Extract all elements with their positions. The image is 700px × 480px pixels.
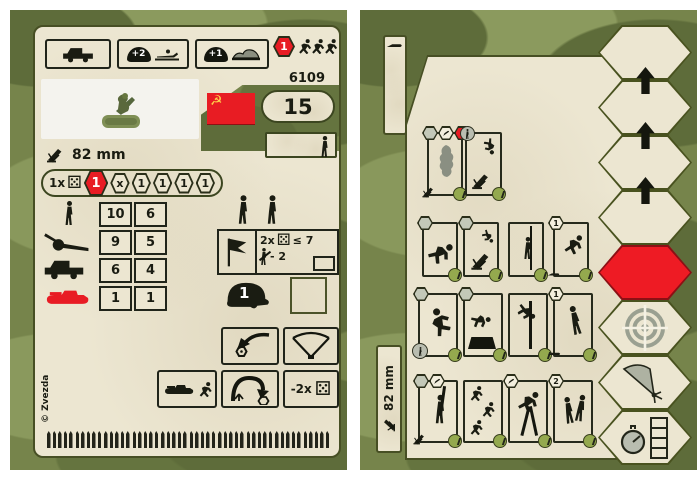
- tank-icon: [161, 381, 195, 397]
- mortar-icon: [412, 433, 428, 445]
- order-carry-mortar: [418, 380, 458, 443]
- fire-arc-icon: [614, 363, 676, 403]
- initiative-current-hex: 1: [84, 170, 108, 196]
- indirect-fire-box: [221, 370, 279, 408]
- left-camo-panel: +2 +1 1 6109 ☭: [10, 10, 347, 470]
- target-truck-icon: [43, 258, 95, 282]
- soldier-icon: [320, 136, 330, 157]
- order-take-cover: 1: [553, 222, 589, 277]
- cost-badge: [448, 348, 462, 362]
- soviet-flag: ☭: [207, 93, 255, 124]
- helmet-value: 1: [239, 284, 249, 302]
- up-arrow-icon: [636, 122, 655, 149]
- initiative-change-box: [221, 327, 279, 365]
- status-hex-target: [598, 300, 692, 355]
- fire-value: 9: [99, 230, 132, 255]
- initiative-prefix: 1x: [49, 176, 65, 190]
- retreat-modifier: -2x: [291, 382, 312, 396]
- timer-boxes-icon: [613, 416, 677, 460]
- fire-value: 6: [134, 202, 167, 227]
- die-icon: ⚄: [277, 232, 291, 248]
- action-hex-badge: [413, 374, 429, 388]
- walking-soldier-icon: [566, 304, 586, 336]
- digging-soldier-icon: [467, 305, 495, 335]
- crossed-soldier-icon: [260, 248, 268, 265]
- walking-soldier-icon: [573, 393, 589, 422]
- order-shovel-work: [508, 293, 548, 357]
- badge-value: 2: [553, 377, 559, 386]
- fire-value: 4: [134, 258, 167, 283]
- cost-badge: [489, 268, 503, 282]
- initiative-hex: 1: [174, 173, 193, 194]
- order-stand-ready: [508, 222, 544, 277]
- cost-badge: [579, 268, 593, 282]
- order-fire-mission: [465, 132, 502, 196]
- cost-badge: [448, 434, 462, 448]
- diving-soldier-icon: [562, 232, 586, 256]
- cost-badge: [493, 348, 507, 362]
- bent-soldier-icon: [517, 302, 538, 323]
- hammer-sickle-icon: ☭: [210, 93, 223, 109]
- firing-mortar-icon: [469, 251, 495, 271]
- hills-icon: [231, 47, 261, 62]
- mortar-shell-icon: [547, 272, 561, 279]
- ammo-group: [247, 426, 273, 448]
- cost-badge: [583, 434, 597, 448]
- morale-penalty: - 2: [270, 250, 286, 263]
- soldier-icon: [266, 195, 279, 224]
- morale-check-cell: 2x ⚄ ≤ 7 - 2: [257, 231, 337, 273]
- entrench-bonus-value: +2: [132, 49, 146, 59]
- flag-icon: [225, 236, 249, 269]
- catalog-number: 6109: [289, 71, 325, 86]
- target-tank-icon: [41, 286, 97, 310]
- cost-badge: [583, 348, 597, 362]
- die-icon: ⚄: [315, 380, 332, 399]
- transport-box: [45, 39, 111, 69]
- status-hex-fire-arc: [598, 355, 692, 410]
- helmet-icon: +2: [127, 47, 151, 62]
- truck-icon: [62, 46, 94, 63]
- cover-bonus-box: +1: [195, 39, 269, 69]
- cost-badge: [448, 268, 462, 282]
- action-hex-badge: [458, 287, 474, 301]
- order-emplace-fire: [463, 222, 499, 277]
- cover-bonus-value: +1: [209, 49, 223, 59]
- order-entrench: [463, 293, 503, 357]
- cost-badge: [493, 434, 507, 448]
- order-march-column: [463, 380, 503, 443]
- action-hex-badge: [417, 216, 433, 230]
- up-arrow-icon: [636, 177, 655, 204]
- firing-mortar-icon: [470, 172, 494, 190]
- marching-soldier-icon: [469, 420, 484, 435]
- entrench-bonus-box: +2: [117, 39, 189, 69]
- ammo-tally-strip: [47, 426, 329, 448]
- weapon-heading: 82 mm: [45, 147, 126, 163]
- shell-hex-badge: [503, 374, 519, 388]
- target-gun-icon: [41, 232, 97, 254]
- cost-badge: [534, 268, 548, 282]
- initiative-hex: 1: [196, 173, 215, 194]
- fire-value: 1: [99, 286, 132, 311]
- initiative-cell: 1: [180, 177, 188, 190]
- rout-hex: 1: [273, 36, 295, 57]
- fire-value: 6: [99, 258, 132, 283]
- prone-shooter-icon: [154, 47, 180, 62]
- arc-over-obstacle-icon: [225, 373, 275, 405]
- status-hex-red: [598, 245, 692, 300]
- soldier-circle-badge: [460, 126, 475, 141]
- mortar-team-model-image: [88, 87, 152, 131]
- smoke-cloud-icon: [436, 138, 456, 184]
- weapon-caliber: 82 mm: [72, 147, 126, 163]
- rout-marker: 1: [273, 36, 339, 57]
- marching-soldier-icon: [481, 402, 496, 417]
- morale-box: 2x ⚄ ≤ 7 - 2: [217, 229, 339, 275]
- order-climb: [418, 293, 458, 357]
- copyright-text: © Zvezda: [41, 353, 51, 423]
- ammo-group: [133, 426, 159, 448]
- status-hex-timer: [598, 410, 692, 465]
- right-camo-panel: 1 1: [360, 10, 697, 470]
- climbing-soldier-icon: [421, 304, 458, 341]
- ammo-group: [161, 426, 187, 448]
- ammo-group: [76, 426, 102, 448]
- unit-photo: [41, 79, 199, 139]
- status-marker-box: [290, 277, 327, 314]
- mortar-icon: [382, 415, 396, 433]
- assault-box: [157, 370, 217, 408]
- initiative-current: 1: [92, 176, 101, 191]
- numbered-hex-badge: 2: [548, 374, 564, 388]
- mortar-shell-icon: [386, 43, 404, 51]
- mortar-shell-icon: [547, 351, 562, 359]
- wheel-badge: [412, 343, 428, 359]
- target-icon: [622, 305, 668, 351]
- fire-value: 5: [134, 230, 167, 255]
- morale-threshold: ≤ 7: [293, 234, 314, 247]
- morale-dice-count: 2x: [260, 234, 275, 247]
- initiative-track: 1x ⚄ 1 x 1 1 1 1: [41, 169, 223, 197]
- ammo-group: [47, 426, 73, 448]
- numbered-hex-badge: 1: [548, 216, 564, 230]
- unit-card-front: +2 +1 1 6109 ☭: [33, 25, 341, 458]
- action-hex-badge: [413, 287, 429, 301]
- order-crawl: [422, 222, 458, 277]
- ammo-group: [304, 426, 330, 448]
- action-hex-badge: [458, 216, 474, 230]
- mortar-icon: [45, 147, 67, 163]
- strength-box: [265, 132, 337, 158]
- badge-value: 1: [553, 219, 559, 228]
- order-shoulder-mortar: [508, 380, 548, 443]
- crew-icons: [237, 195, 279, 224]
- shell-tab: [383, 35, 407, 135]
- morale-marker-box: [313, 256, 335, 271]
- up-arrow-icon: [636, 67, 655, 94]
- initiative-cell: 1: [201, 177, 209, 190]
- weapon-tab: 82 mm: [376, 345, 402, 453]
- scan-of-game-cards: { "front_card": { "catalog_number": "610…: [0, 0, 700, 480]
- running-soldier-icon: [323, 39, 339, 54]
- numbered-hex-badge: 1: [548, 287, 564, 301]
- initiative-cell: 1: [159, 177, 167, 190]
- mortar-icon: [421, 186, 437, 198]
- soldier-icon: [237, 195, 250, 224]
- fire-value: 10: [99, 202, 132, 227]
- order-double-move: 2: [553, 380, 593, 443]
- rout-value: 1: [280, 40, 288, 53]
- target-infantry-icon: [43, 201, 95, 227]
- order-move-fire: 1: [553, 293, 593, 357]
- spotting-arc-box: [283, 327, 339, 365]
- ammo-group: [190, 426, 216, 448]
- initiative-cell: 1: [137, 177, 145, 190]
- badge-value: 1: [553, 290, 559, 299]
- curved-arrow-die-icon: [225, 331, 275, 361]
- initiative-hex: 1: [153, 173, 172, 194]
- ammo-group: [218, 426, 244, 448]
- fire-value: 1: [134, 286, 167, 311]
- crawling-soldier-icon: [424, 235, 457, 268]
- initiative-cell: x: [116, 177, 123, 190]
- falling-soldier-icon: [480, 136, 501, 157]
- running-soldier-icon: [198, 382, 213, 397]
- ammo-group: [275, 426, 301, 448]
- order-smoke-screen: [427, 132, 463, 196]
- helmet-icon: +1: [204, 47, 228, 62]
- points-pill: 15: [261, 90, 335, 123]
- marching-soldier-icon: [469, 386, 484, 401]
- points-value: 15: [283, 95, 312, 119]
- cost-badge: [538, 434, 552, 448]
- weapon-caliber: 82 mm: [382, 365, 396, 411]
- armor-helmet: 1: [223, 279, 271, 312]
- cost-badge: [492, 187, 506, 201]
- morale-flag-cell: [219, 231, 257, 273]
- retreat-penalty-box: -2x ⚄: [283, 370, 339, 408]
- initiative-hex: x: [110, 173, 129, 194]
- initiative-hex: 1: [132, 173, 151, 194]
- die-icon: ⚄: [67, 175, 82, 192]
- recoiling-soldier-icon: [480, 228, 498, 246]
- observation-fan-icon: [288, 331, 334, 361]
- ammo-group: [104, 426, 130, 448]
